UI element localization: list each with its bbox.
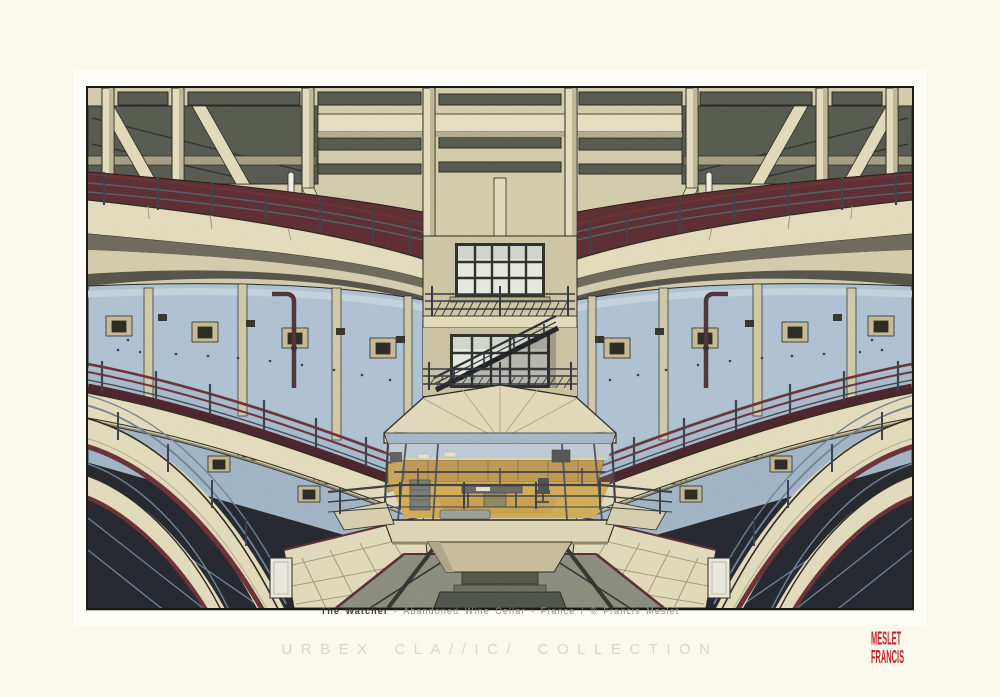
artwork-frame	[86, 86, 914, 610]
seal-line-1: MESLET	[871, 629, 904, 648]
artwork-title: The Watcher	[321, 606, 389, 616]
seal-line-2: FRANCIS	[871, 648, 904, 667]
poster-page: The Watcher - Abandoned Wine Cellar - Fr…	[0, 0, 1000, 697]
artwork-illustration	[88, 88, 912, 608]
collection-title: URBEX CLA//IC/ COLLECTION	[0, 641, 1000, 658]
artist-seal: MESLET FRANCIS	[871, 629, 904, 666]
paper-grain-overlay	[88, 88, 912, 608]
artwork-subtitle: - Abandoned Wine Cellar - France / © Fra…	[394, 606, 679, 616]
caption: The Watcher - Abandoned Wine Cellar - Fr…	[0, 606, 1000, 616]
